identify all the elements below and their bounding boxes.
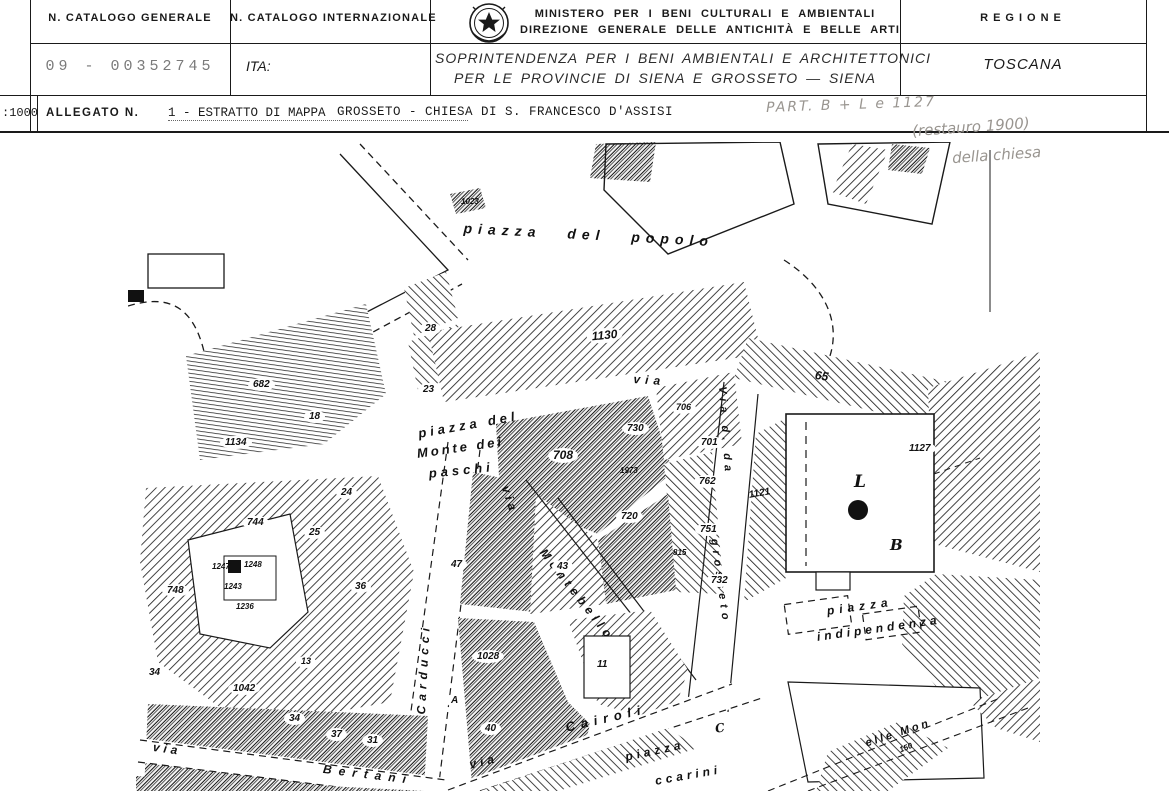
parcel-label-720: 720 — [616, 510, 643, 523]
street-label-bertani: Bertani — [322, 762, 413, 787]
street-label-via: via — [152, 740, 182, 758]
parcel-label-65: 65 — [814, 368, 829, 384]
parcel-label-1236: 1236 — [236, 602, 254, 611]
parcel-label-25: 25 — [304, 526, 325, 539]
parcel-label-1973: 1973 — [620, 466, 638, 475]
parcel-label-150: 150 — [898, 741, 914, 754]
parcel-label-751: 751 — [695, 523, 722, 536]
regione-value: TOSCANA — [900, 56, 1146, 73]
parcel-label-732: 732 — [706, 574, 733, 587]
street-label-montebello: Montebello — [537, 546, 618, 644]
street-label-carducci: Carducci — [414, 623, 433, 715]
parcel-label-708: 708 — [548, 448, 578, 463]
street-label-paschi: paschi — [428, 459, 494, 481]
scanned-catalog-sheet: N. CATALOGO GENERALE 09 - 00352745 N. CA… — [0, 0, 1169, 791]
parcel-label-682: 682 — [248, 378, 275, 391]
regione-label: REGIONE — [900, 12, 1146, 24]
parcel-label-1023: 1023 — [461, 197, 479, 206]
soprintendenza-line2: PER LE PROVINCIE DI SIENA E GROSSETO — S… — [435, 70, 895, 86]
street-label-via-d-da: Via d. da — [716, 386, 734, 476]
parcel-label-13: 13 — [296, 656, 316, 668]
parcel-label-744: 744 — [242, 516, 269, 529]
handwritten-restauro-note: (restauro 1900) — [912, 114, 1031, 140]
parcel-label-36: 36 — [350, 580, 371, 593]
street-label-piazza-del: piazza del — [417, 408, 519, 440]
map-subject-title: GROSSETO - CHIESA DI S. FRANCESCO D'ASSI… — [337, 105, 673, 119]
parcel-label-47: 47 — [446, 558, 467, 571]
catalogo-generale-value: 09 - 00352745 — [30, 58, 230, 75]
parcel-label-748: 748 — [162, 584, 189, 597]
parcel-label-18: 18 — [304, 410, 325, 423]
parcel-label-l: L — [854, 472, 866, 492]
handwritten-part-note: PART. B + L e 1127 — [766, 94, 936, 116]
street-label-piazza: piazza — [826, 595, 893, 618]
street-label-ccarini: ccarini — [654, 762, 722, 787]
scale-value: :1000 — [2, 106, 38, 120]
street-label-via: via — [499, 484, 521, 516]
parcel-label-34: 34 — [284, 712, 305, 725]
parcel-label-1127: 1127 — [904, 442, 936, 455]
parcel-label-701: 701 — [696, 436, 723, 449]
parcel-label-1130: 1130 — [586, 326, 623, 345]
parcel-label-43: 43 — [552, 560, 573, 573]
street-label-via: via — [468, 751, 499, 772]
parcel-label-730: 730 — [622, 422, 649, 435]
parcel-label-a: A — [446, 694, 463, 707]
header-bottom-line — [0, 95, 1146, 96]
street-label-piazza: piazza — [624, 738, 686, 764]
parcel-label-1247: 1247 — [212, 562, 230, 571]
street-label-via: via — [633, 372, 666, 388]
ministry-line1: MINISTERO PER I BENI CULTURALI E AMBIENT… — [520, 8, 890, 20]
parcel-label-34: 34 — [144, 666, 165, 679]
parcel-label-b: B — [890, 536, 903, 554]
catalogo-internazionale-label: N. CATALOGO INTERNAZIONALE — [230, 12, 430, 24]
cadastral-map: piazza del popolopiazza delMonte deipasc… — [128, 142, 1044, 791]
parcel-label-1248: 1248 — [244, 560, 262, 569]
parcel-label-23: 23 — [418, 383, 439, 396]
parcel-label-1042: 1042 — [228, 682, 260, 695]
parcel-label-31: 31 — [362, 734, 383, 747]
soprintendenza-line1: SOPRINTENDENZA PER I BENI AMBIENTALI E A… — [435, 50, 895, 66]
ministry-line2: DIREZIONE GENERALE DELLE ANTICHITÀ E BEL… — [520, 24, 890, 36]
parcel-label-28: 28 — [420, 322, 441, 335]
map-label-layer: piazza del popolopiazza delMonte deipasc… — [128, 142, 1044, 791]
italian-state-emblem-icon — [468, 2, 510, 44]
parcel-label-762: 762 — [694, 475, 721, 488]
parcel-label-11: 11 — [592, 658, 612, 671]
parcel-label-1121: 1121 — [748, 486, 771, 501]
street-label-cairoli: Cairoli — [564, 701, 648, 734]
header-row-separator — [30, 43, 1146, 44]
parcel-label-706: 706 — [671, 402, 696, 414]
parcel-label-40: 40 — [480, 722, 501, 735]
parcel-label-815: 815 — [673, 548, 686, 557]
parcel-label-1243: 1243 — [224, 582, 242, 591]
parcel-label-1028: 1028 — [472, 650, 504, 663]
parcel-label-24: 24 — [336, 486, 357, 499]
catalogo-generale-label: N. CATALOGO GENERALE — [30, 12, 230, 24]
allegato-label: ALLEGATO N. — [46, 107, 139, 119]
parcel-label-1134: 1134 — [220, 436, 252, 449]
parcel-label-c: C — [714, 720, 726, 735]
header-right-border — [1146, 0, 1147, 132]
parcel-label-37: 37 — [326, 728, 347, 741]
street-label-indipendenza: indipendenza — [816, 613, 941, 644]
street-label-piazza-del-popolo: piazza del popolo — [463, 220, 714, 249]
catalogo-internazionale-value: ITA: — [246, 58, 271, 74]
